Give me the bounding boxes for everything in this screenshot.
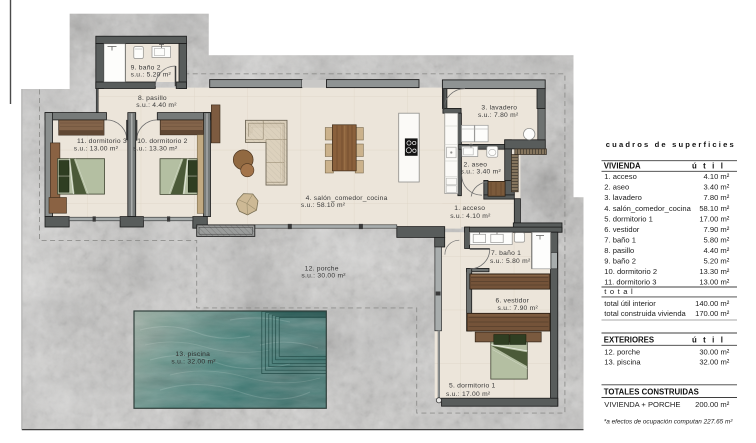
svg-text:s.u.: 30.00 m²: s.u.: 30.00 m² <box>301 272 346 279</box>
svg-text:s.u.: 13.00 m²: s.u.: 13.00 m² <box>74 146 119 153</box>
svg-text:1. acceso: 1. acceso <box>454 205 485 212</box>
svg-text:11. dormitorio 3: 11. dormitorio 3 <box>77 138 127 145</box>
svg-text:4.10 m²: 4.10 m² <box>704 172 730 181</box>
svg-text:3.40 m²: 3.40 m² <box>704 183 730 192</box>
svg-text:5.20 m²: 5.20 m² <box>704 257 730 266</box>
svg-text:EXTERIORES: EXTERIORES <box>604 336 654 345</box>
svg-text:total: total <box>604 287 636 296</box>
svg-text:2. aseo: 2. aseo <box>604 183 629 192</box>
svg-text:30.00 m²: 30.00 m² <box>699 347 729 356</box>
svg-text:10. dormitorio 2: 10. dormitorio 2 <box>137 138 187 145</box>
svg-text:TOTALES CONSTRUIDAS: TOTALES CONSTRUIDAS <box>604 388 699 397</box>
svg-text:s.u.: 4.10 m²: s.u.: 4.10 m² <box>450 213 491 220</box>
svg-text:s.u.: 5.80 m²: s.u.: 5.80 m² <box>490 258 531 265</box>
svg-text:10. dormitorio 2: 10. dormitorio 2 <box>604 267 657 276</box>
svg-text:32.00 m²: 32.00 m² <box>699 358 729 367</box>
svg-text:170.00 m²: 170.00 m² <box>695 309 730 318</box>
svg-text:5.80 m²: 5.80 m² <box>704 236 730 245</box>
svg-text:7. baño 1: 7. baño 1 <box>491 250 521 257</box>
svg-text:4.40 m²: 4.40 m² <box>704 246 730 255</box>
svg-text:7.80 m²: 7.80 m² <box>704 193 730 202</box>
svg-text:s.u.: 58.10 m²: s.u.: 58.10 m² <box>301 202 346 209</box>
svg-text:9. baño 2: 9. baño 2 <box>131 65 161 72</box>
svg-text:17.00 m²: 17.00 m² <box>699 214 729 223</box>
svg-text:VIVIENDA + PORCHE: VIVIENDA + PORCHE <box>604 400 680 409</box>
svg-text:13.00 m²: 13.00 m² <box>699 278 729 287</box>
svg-text:s.u.: 7.80 m²: s.u.: 7.80 m² <box>478 112 519 119</box>
svg-text:s.u.: 13.30 m²: s.u.: 13.30 m² <box>133 146 178 153</box>
svg-text:1. acceso: 1. acceso <box>604 172 637 181</box>
svg-text:útil: útil <box>692 336 729 345</box>
svg-text:4. salón_comedor_cocina: 4. salón_comedor_cocina <box>306 195 388 202</box>
svg-text:13. piscina: 13. piscina <box>175 351 210 358</box>
svg-text:140.00 m²: 140.00 m² <box>695 299 730 308</box>
svg-text:total útil interior: total útil interior <box>604 299 656 308</box>
svg-text:s.u.: 32.00 m²: s.u.: 32.00 m² <box>171 359 216 366</box>
svg-text:11. dormitorio 3: 11. dormitorio 3 <box>604 278 656 287</box>
svg-text:total construida vivienda: total construida vivienda <box>604 309 686 318</box>
svg-text:8. pasillo: 8. pasillo <box>604 246 634 255</box>
svg-text:9. baño 2: 9. baño 2 <box>604 257 636 266</box>
svg-text:5. dormitorio 1: 5. dormitorio 1 <box>449 383 496 390</box>
svg-text:s.u.: 4.40 m²: s.u.: 4.40 m² <box>136 102 177 109</box>
svg-text:5. dormitorio 1: 5. dormitorio 1 <box>604 214 653 223</box>
svg-text:58.10 m²: 58.10 m² <box>699 204 729 213</box>
svg-text:s.u.: 3.40 m²: s.u.: 3.40 m² <box>461 169 502 176</box>
svg-text:13. piscina: 13. piscina <box>604 358 641 367</box>
svg-text:200.00 m²: 200.00 m² <box>695 400 730 409</box>
svg-text:4. salón_comedor_cocina: 4. salón_comedor_cocina <box>604 204 691 213</box>
svg-text:2. aseo: 2. aseo <box>464 161 488 168</box>
svg-text:s.u.: 17.00 m²: s.u.: 17.00 m² <box>446 391 491 398</box>
svg-text:7.90 m²: 7.90 m² <box>704 225 730 234</box>
svg-text:6. vestidor: 6. vestidor <box>604 225 640 234</box>
svg-text:cuadros de superficies: cuadros de superficies <box>606 140 736 149</box>
svg-text:7. baño 1: 7. baño 1 <box>604 236 636 245</box>
svg-text:s.u.: 5.20 m²: s.u.: 5.20 m² <box>131 72 172 79</box>
svg-text:útil: útil <box>692 162 729 171</box>
svg-text:6. vestidor: 6. vestidor <box>496 297 530 304</box>
svg-text:VIVIENDA: VIVIENDA <box>604 162 641 171</box>
svg-text:s.u.: 7.90 m²: s.u.: 7.90 m² <box>498 305 539 312</box>
svg-text:*a efectos de ocupación comput: *a efectos de ocupación computan 227.65 … <box>604 419 733 426</box>
svg-text:12. porche: 12. porche <box>604 347 640 356</box>
svg-text:13.30 m²: 13.30 m² <box>699 267 729 276</box>
svg-text:3. lavadero: 3. lavadero <box>604 193 642 202</box>
svg-text:8. pasillo: 8. pasillo <box>138 95 167 102</box>
svg-text:3. lavadero: 3. lavadero <box>481 105 517 112</box>
